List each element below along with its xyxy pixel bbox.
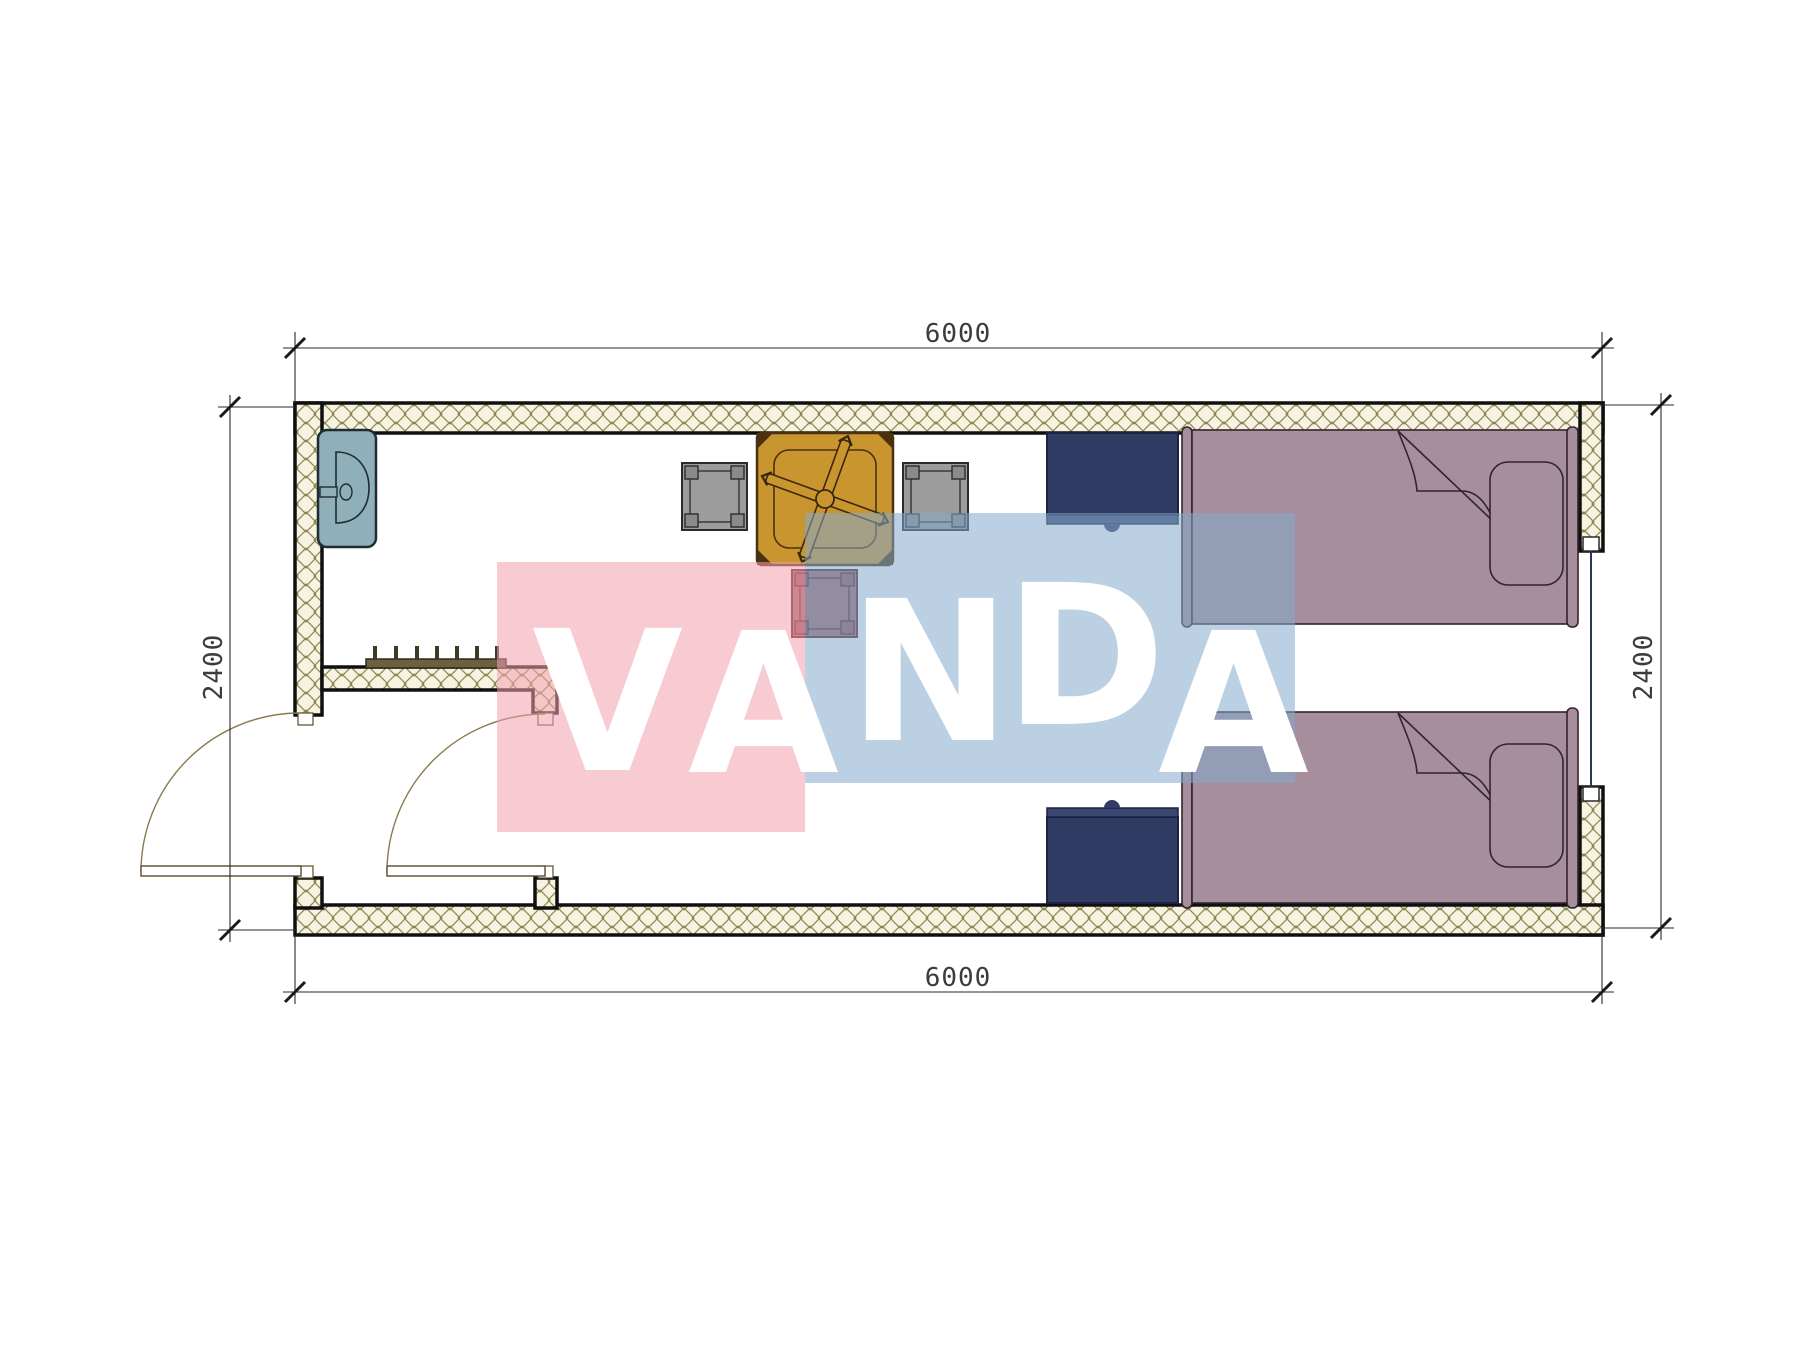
watermark-letter: D bbox=[1004, 543, 1166, 770]
bed-pillow bbox=[1490, 744, 1563, 867]
door-leaf-right bbox=[387, 866, 545, 876]
coat-rack-pegs bbox=[373, 646, 499, 660]
window-frame-top bbox=[1583, 537, 1599, 551]
watermark-letter: N bbox=[848, 559, 1011, 786]
floor-plan-page: 6000 6000 2400 2400 V A N D A bbox=[0, 0, 1800, 1350]
wall-jamb-mid bbox=[535, 878, 557, 908]
coat-rack-bar bbox=[366, 659, 506, 668]
floor-plan-drawing: 6000 6000 2400 2400 V A N D A bbox=[0, 0, 1800, 1350]
sink-faucet-knob bbox=[340, 484, 352, 500]
entry-doors bbox=[141, 713, 553, 878]
dim-text-bottom: 6000 bbox=[925, 963, 992, 993]
coat-rack bbox=[366, 646, 506, 668]
dim-text-top: 6000 bbox=[925, 319, 992, 349]
dim-text-right: 2400 bbox=[1629, 634, 1659, 701]
watermark-letter: A bbox=[1158, 591, 1309, 818]
window-frame-bottom bbox=[1583, 787, 1599, 801]
dim-text-left: 2400 bbox=[199, 634, 229, 701]
wall-jamb-left bbox=[295, 878, 322, 908]
nightstand-body bbox=[1047, 817, 1178, 903]
nightstand-handle bbox=[1104, 800, 1120, 808]
bed-footboard bbox=[1567, 427, 1578, 627]
wall-top bbox=[295, 403, 1603, 433]
bed-footboard bbox=[1567, 708, 1578, 908]
watermark-letter: V bbox=[532, 589, 683, 816]
wall-bottom bbox=[295, 905, 1603, 935]
nightstand-body bbox=[1047, 433, 1178, 515]
window-right bbox=[1583, 537, 1599, 801]
chair-left bbox=[682, 463, 747, 530]
watermark: V A N D A bbox=[497, 513, 1309, 832]
door-swing-arc-left bbox=[141, 713, 300, 872]
watermark-letter: A bbox=[688, 591, 839, 818]
door-leaf-left bbox=[141, 866, 301, 876]
door-frame-block bbox=[298, 713, 313, 725]
wall-right-upper bbox=[1580, 403, 1603, 551]
sink-faucet bbox=[320, 487, 337, 497]
sink bbox=[318, 430, 376, 547]
bed-pillow bbox=[1490, 462, 1563, 585]
